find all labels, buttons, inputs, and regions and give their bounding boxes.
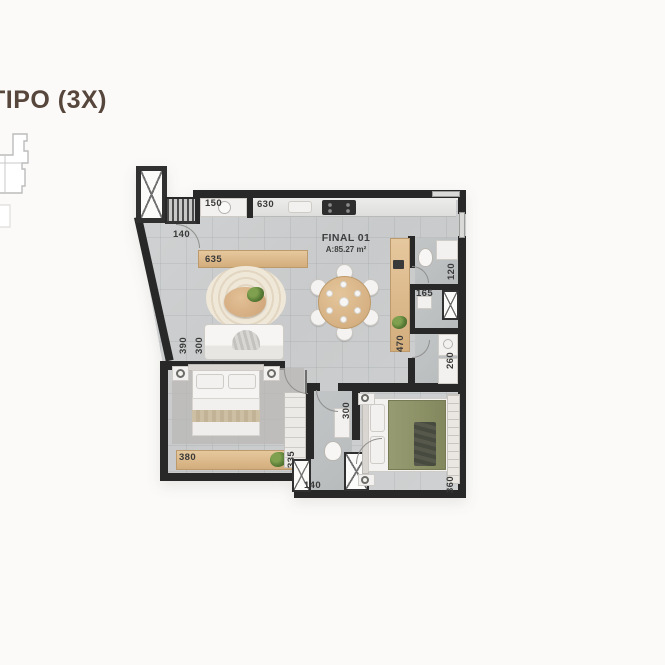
wall-bedroom1-bottom [160, 473, 300, 481]
bed1-pillow [196, 374, 224, 389]
unit-area: A:85.27 m² [296, 245, 396, 254]
cooktop [322, 200, 356, 215]
dim-bedroom2-width: 300 [342, 402, 352, 419]
plate [326, 307, 333, 314]
wc-toilet [418, 248, 433, 267]
unit-label: FINAL 01 A:85.27 m² [296, 232, 396, 254]
shaft-elevator [136, 166, 167, 223]
floor-plan: FINAL 01 A:85.27 m² [0, 0, 665, 665]
plate [326, 290, 333, 297]
dim-laundry-depth: 260 [446, 352, 456, 369]
window-top [432, 191, 460, 197]
dim-bedroom1-depth: 335 [287, 451, 297, 468]
plate [340, 316, 347, 323]
lamp [267, 369, 276, 378]
wc-vanity [436, 240, 458, 260]
dim-bathroom-width: 140 [304, 481, 321, 491]
wall-dining-laundry [408, 358, 415, 385]
wall-bedroom1-left [160, 361, 168, 481]
bed2-throw [414, 422, 436, 466]
door-leaf-bedroom1 [305, 370, 307, 394]
bed2-pillow [370, 404, 385, 432]
plate [354, 290, 361, 297]
dim-dining-sideboard: 470 [396, 335, 406, 352]
sofa-throw [232, 330, 260, 350]
lamp [361, 394, 369, 402]
wall-wardrobe-bath [306, 383, 314, 459]
window-right [459, 212, 465, 238]
decor-object [393, 260, 404, 269]
plate [354, 307, 361, 314]
plate [340, 281, 347, 288]
dim-service-width: 150 [205, 199, 222, 209]
unit-name: FINAL 01 [296, 232, 396, 244]
floorplan-page: TIPO (3X) [0, 0, 665, 665]
dim-entry-hall: 140 [173, 230, 190, 240]
bed1-runner [192, 410, 260, 422]
stair-grill [165, 197, 197, 224]
wall-top [193, 190, 466, 198]
kitchen-sink [288, 201, 312, 213]
dim-bedroom2-wardrobe: 360 [446, 476, 456, 493]
lamp [176, 369, 185, 378]
dim-kitchen-run: 630 [257, 200, 274, 210]
dim-living-depth: 390 [179, 337, 189, 354]
dim-bedroom1-width: 380 [179, 453, 196, 463]
center-bowl [339, 297, 349, 307]
washer-door [443, 339, 453, 349]
dim-shower-bath: 165 [416, 289, 433, 299]
bedroom2-wardrobe [447, 394, 460, 484]
toilet [324, 441, 342, 461]
lamp [361, 476, 369, 484]
dim-wc-width: 120 [447, 263, 457, 280]
dim-living-width: 635 [205, 255, 222, 265]
bed1-pillow [228, 374, 256, 389]
dim-living-wall: 300 [195, 337, 205, 354]
shower-box-2 [442, 290, 459, 320]
